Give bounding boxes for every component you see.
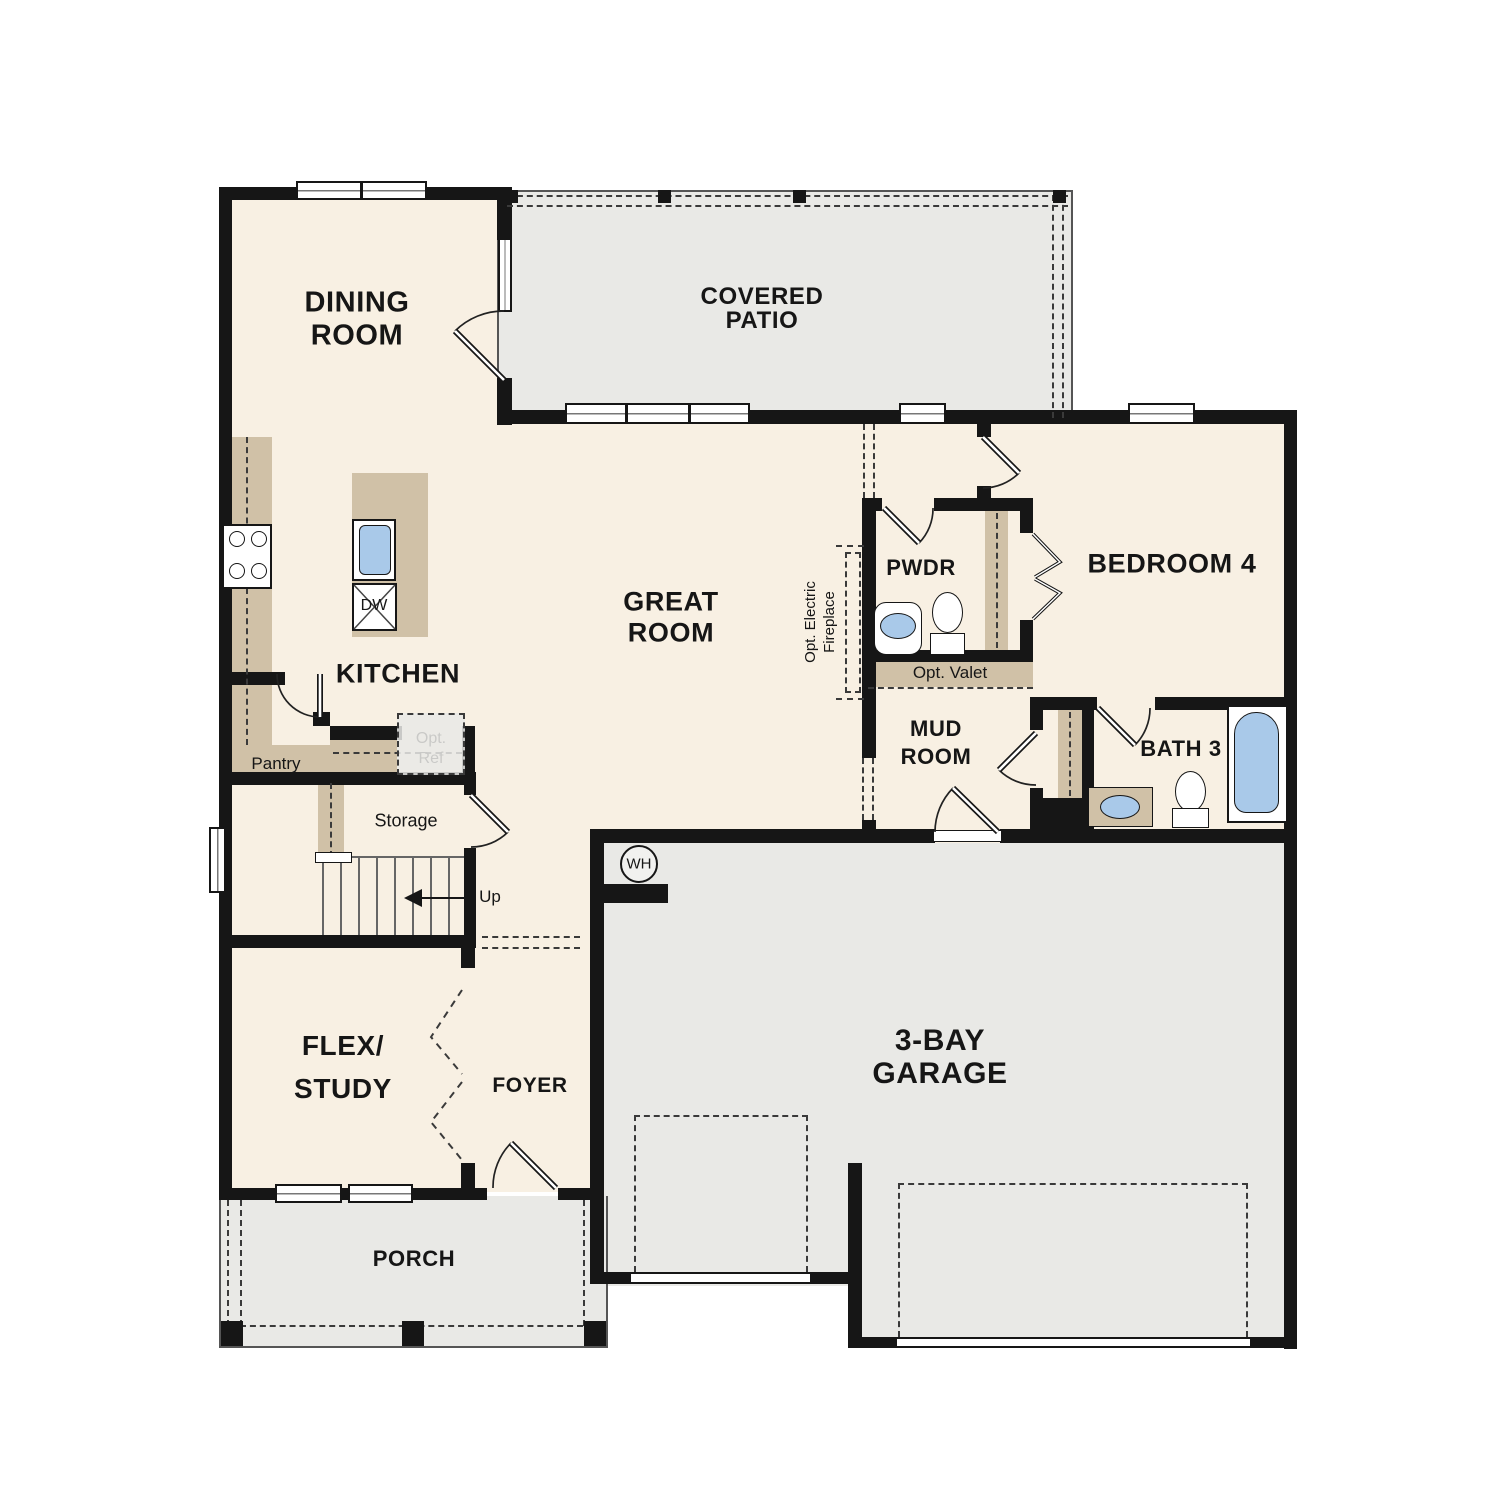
room-label-pwdr: PWDR [886, 555, 956, 581]
floor-plan: DINING ROOM COVERED PATIO GREAT ROOM KIT… [0, 0, 1500, 1500]
bifold-closet-doors [1033, 534, 1060, 619]
room-label-foyer: FOYER [492, 1074, 567, 1098]
room-label-great-room: GREAT [623, 587, 719, 618]
label-opt-valet: Opt. Valet [913, 663, 987, 683]
label-up: Up [479, 887, 501, 907]
label-pantry: Pantry [251, 754, 300, 774]
opt-french-doors [431, 990, 462, 1160]
room-label-mud-room: MUD [910, 716, 962, 742]
room-label-patio2: PATIO [726, 307, 799, 335]
label-dw: DW [361, 597, 388, 615]
stairs-up-arrow [404, 889, 472, 907]
room-label-garage: 3-BAY [895, 1024, 985, 1058]
room-label-flex2: STUDY [294, 1073, 392, 1105]
room-label-bedroom4: BEDROOM 4 [1088, 549, 1257, 580]
room-label-dining2: ROOM [311, 320, 404, 353]
label-wh: WH [627, 856, 652, 873]
room-label-bath3: BATH 3 [1140, 736, 1221, 762]
room-label-garage2: GARAGE [872, 1057, 1007, 1091]
room-label-great-room2: ROOM [628, 618, 714, 649]
room-label-flex: FLEX/ [302, 1030, 384, 1062]
opt-ref-box [397, 713, 465, 775]
room-label-porch: PORCH [373, 1246, 455, 1272]
room-label-dining: DINING [304, 287, 409, 320]
label-opt-fireplace: Opt. Electric Fireplace [801, 581, 839, 663]
door-symbols [0, 0, 1500, 1500]
room-label-mud-room2: ROOM [901, 744, 972, 770]
label-storage: Storage [374, 811, 437, 832]
room-label-kitchen: KITCHEN [336, 659, 460, 690]
